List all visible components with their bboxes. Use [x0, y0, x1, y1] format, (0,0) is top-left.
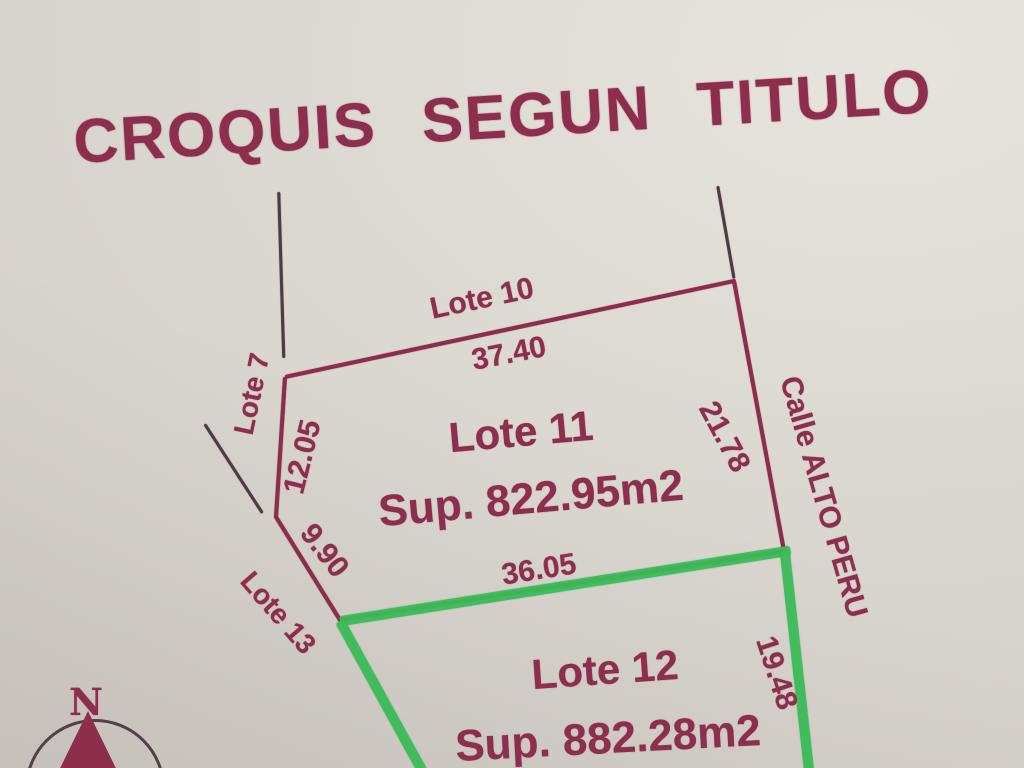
area-lote-12: Sup. 882.28m2 [454, 709, 762, 768]
label-lote-10: Lote 10 [428, 273, 537, 324]
label-lote-11: Lote 11 [447, 405, 595, 459]
scanned-croquis-page: CROQUIS SEGUN TITULO Lote 1037.40Lote 71… [0, 0, 1024, 768]
page-title: CROQUIS SEGUN TITULO [72, 56, 935, 178]
north-label: N [69, 680, 103, 724]
dim-9-90: 9.90 [294, 519, 354, 583]
lote12-highlight-left [336, 619, 428, 768]
label-lote-13: Lote 13 [235, 567, 320, 659]
area-lote-11: Sup. 822.95m2 [377, 464, 685, 534]
dim-12-05: 12.05 [279, 417, 326, 497]
lote11-edge-calle-2178 [732, 281, 786, 554]
tick-lote7-lote10 [278, 192, 286, 358]
label-lote-12: Lote 12 [530, 644, 680, 696]
tick-lote10-calle [717, 186, 736, 279]
lote11-edge-left-1205 [274, 377, 287, 519]
label-lote-7: Lote 7 [230, 351, 275, 437]
dim-21-78: 21.78 [693, 397, 755, 477]
dim-37-40: 37.40 [469, 332, 548, 376]
